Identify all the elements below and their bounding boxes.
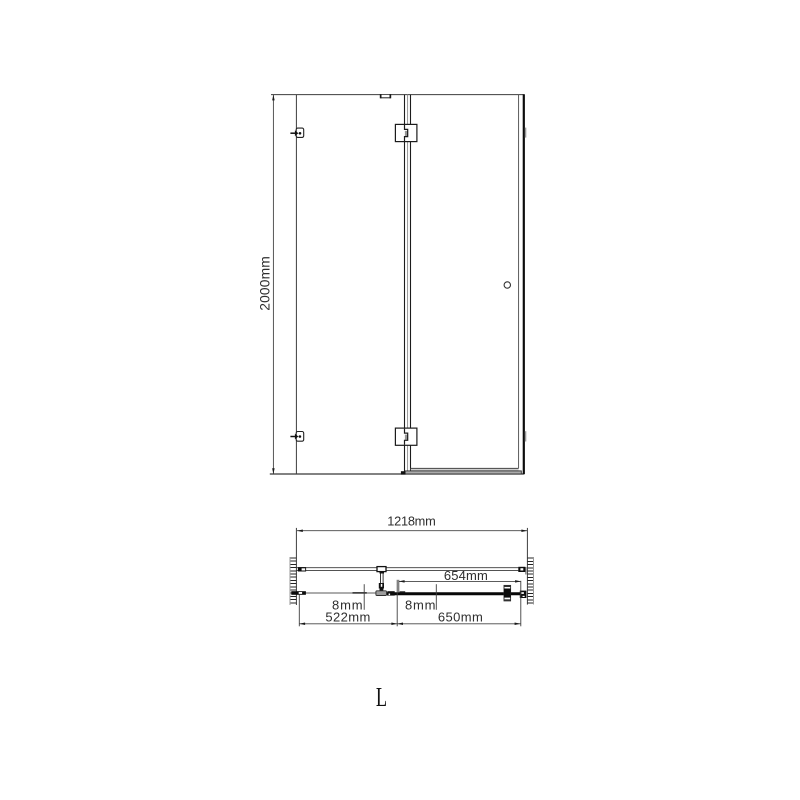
svg-text:2000mm: 2000mm xyxy=(258,256,273,311)
svg-text:1218mm: 1218mm xyxy=(387,514,436,529)
svg-text:650mm: 650mm xyxy=(438,609,483,624)
svg-text:654mm: 654mm xyxy=(444,568,488,583)
svg-text:L: L xyxy=(376,681,387,711)
svg-text:8mm: 8mm xyxy=(405,598,436,613)
svg-text:522mm: 522mm xyxy=(325,609,370,624)
